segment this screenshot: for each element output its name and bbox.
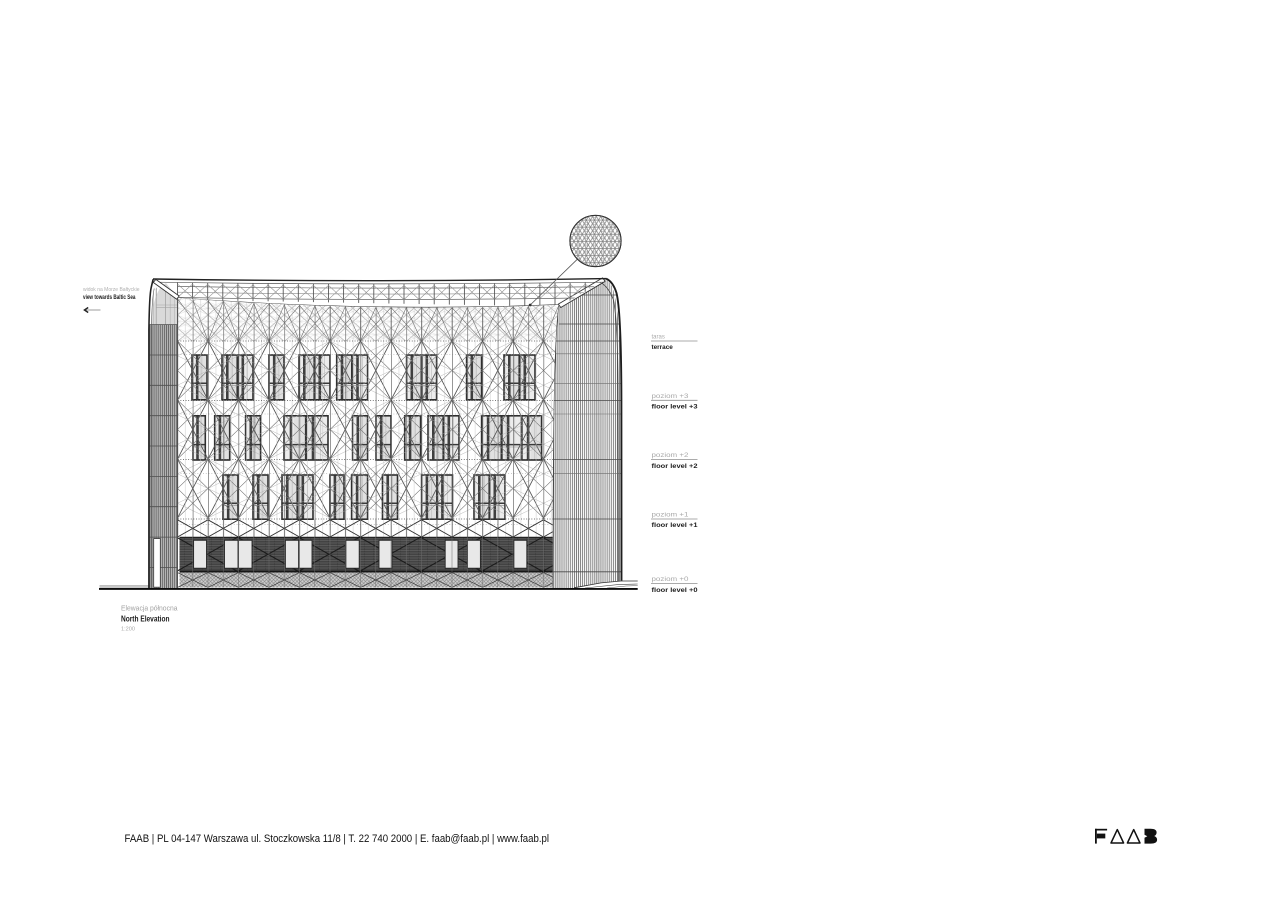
svg-text:poziom +0: poziom +0 (652, 577, 690, 583)
svg-text:floor level +1: floor level +1 (652, 522, 699, 529)
svg-text:1:200: 1:200 (121, 627, 135, 633)
svg-text:poziom +3: poziom +3 (652, 394, 690, 400)
svg-text:floor level +0: floor level +0 (652, 587, 699, 594)
svg-text:widok na Morze Bałtyckie: widok na Morze Bałtyckie (82, 287, 139, 293)
svg-text:poziom +1: poziom +1 (652, 513, 690, 519)
svg-text:terrace: terrace (652, 344, 674, 351)
svg-text:taras: taras (652, 335, 665, 341)
svg-text:Elewacja północna: Elewacja północna (121, 604, 178, 613)
svg-text:poziom +2: poziom +2 (652, 453, 690, 459)
svg-text:FAAB | PL 04-147 Warszawa ul.: FAAB | PL 04-147 Warszawa ul. Stoczkowsk… (125, 833, 550, 845)
svg-text:North Elevation: North Elevation (121, 614, 170, 624)
svg-text:floor level +3: floor level +3 (652, 404, 699, 411)
svg-text:floor level +2: floor level +2 (652, 463, 699, 470)
svg-text:view towards Baltic Sea: view towards Baltic Sea (83, 295, 136, 301)
